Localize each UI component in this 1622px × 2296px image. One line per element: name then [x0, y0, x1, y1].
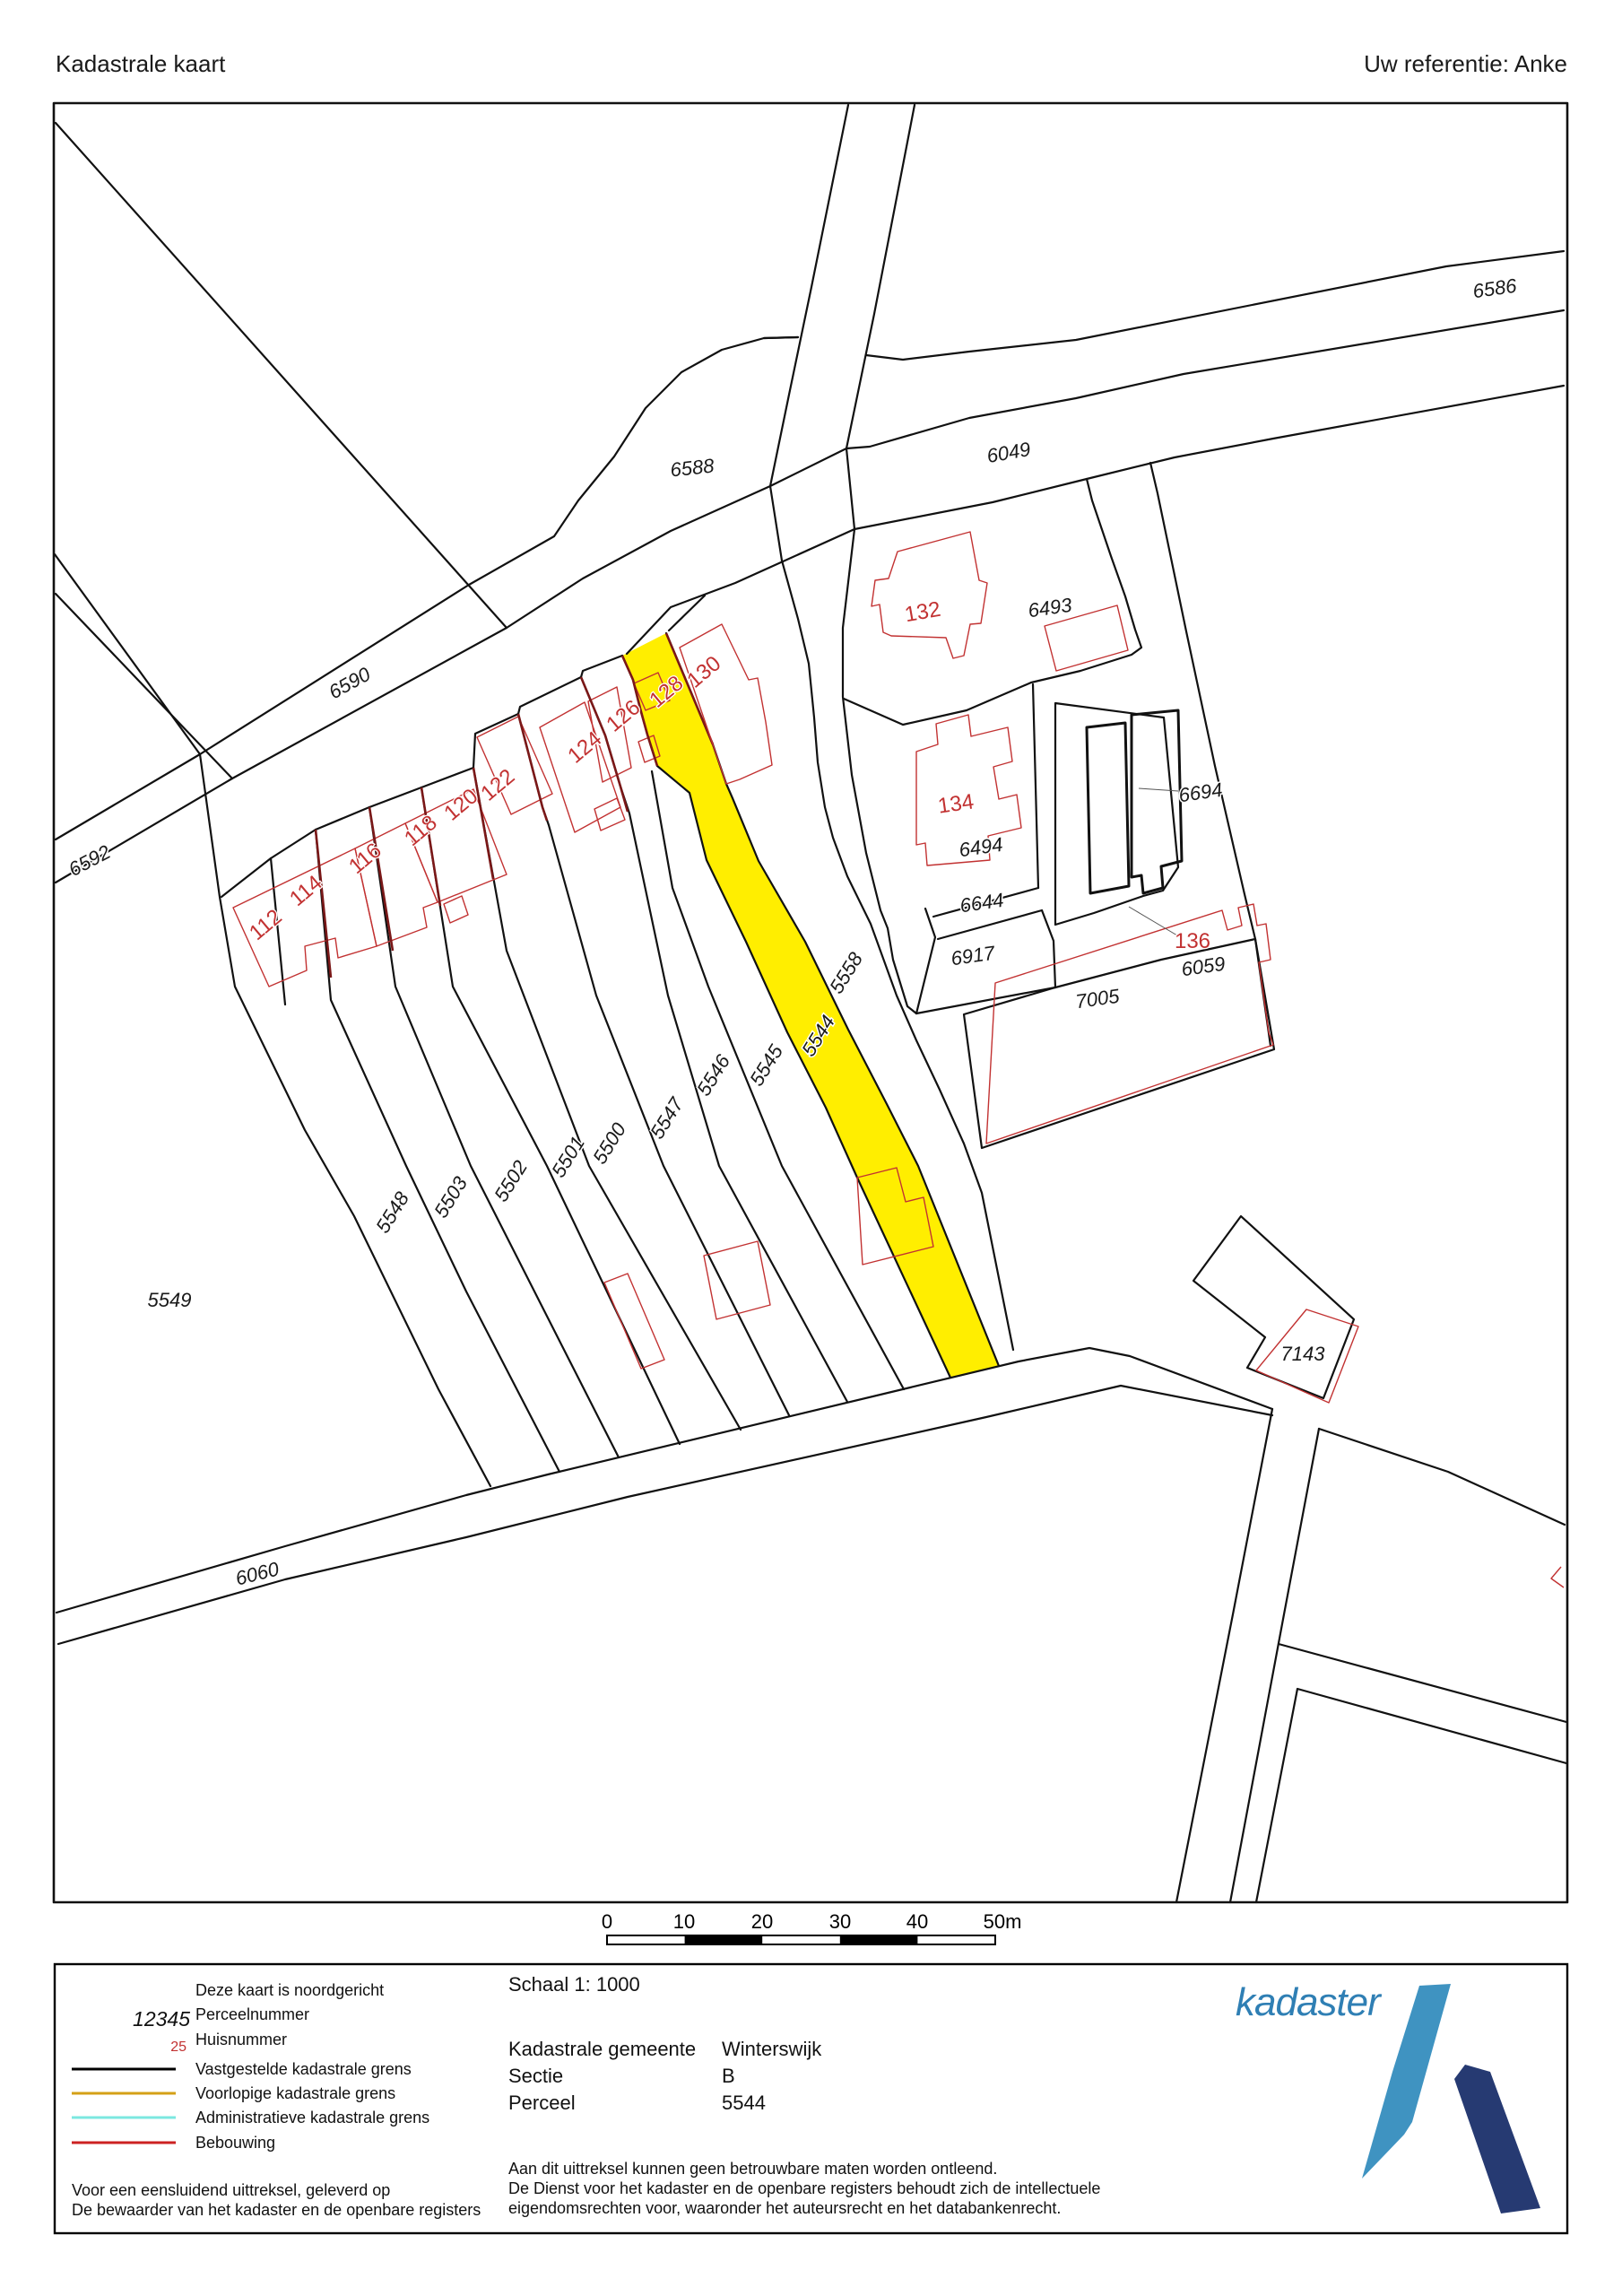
svg-text:5544: 5544 [722, 2092, 766, 2114]
svg-text:10: 10 [673, 1910, 695, 1933]
svg-text:50m: 50m [984, 1910, 1022, 1933]
svg-text:Deze kaart is noordgericht: Deze kaart is noordgericht [195, 1981, 384, 1999]
svg-text:136: 136 [1175, 929, 1210, 953]
svg-text:De Dienst voor het kadaster en: De Dienst voor het kadaster en de openba… [508, 2179, 1100, 2197]
svg-text:De bewaarder van het kadaster: De bewaarder van het kadaster en de open… [72, 2201, 481, 2219]
svg-text:Kadastrale kaart: Kadastrale kaart [56, 50, 226, 77]
svg-text:Huisnummer: Huisnummer [195, 2031, 287, 2048]
svg-text:Voor een eensluidend uittrekse: Voor een eensluidend uittreksel, gelever… [72, 2181, 390, 2199]
svg-text:20: 20 [751, 1910, 773, 1933]
svg-text:12345: 12345 [133, 2007, 190, 2031]
svg-text:Kadastrale gemeente: Kadastrale gemeente [508, 2038, 696, 2060]
svg-text:6588: 6588 [669, 454, 716, 481]
svg-text:30: 30 [829, 1910, 851, 1933]
svg-text:eigendomsrechten voor, waarond: eigendomsrechten voor, waaronder het aut… [508, 2199, 1061, 2217]
svg-text:kadaster: kadaster [1236, 1980, 1383, 2024]
svg-text:0: 0 [602, 1910, 612, 1933]
svg-text:Uw referentie: Anke: Uw referentie: Anke [1364, 50, 1567, 77]
svg-text:25: 25 [170, 2039, 186, 2055]
svg-text:7143: 7143 [1281, 1343, 1326, 1365]
svg-text:Winterswijk: Winterswijk [722, 2038, 822, 2060]
svg-text:Voorlopige kadastrale grens: Voorlopige kadastrale grens [195, 2084, 395, 2102]
svg-text:5549: 5549 [148, 1289, 192, 1311]
svg-text:Bebouwing: Bebouwing [195, 2134, 275, 2152]
svg-text:40: 40 [906, 1910, 928, 1933]
svg-text:Administratieve kadastrale gre: Administratieve kadastrale grens [195, 2109, 429, 2126]
svg-text:Vastgestelde kadastrale grens: Vastgestelde kadastrale grens [195, 2060, 412, 2078]
svg-text:Perceelnummer: Perceelnummer [195, 2005, 309, 2023]
svg-text:Schaal 1: 1000: Schaal 1: 1000 [508, 1973, 640, 1996]
svg-text:Perceel: Perceel [508, 2092, 576, 2114]
svg-text:Sectie: Sectie [508, 2065, 563, 2087]
svg-text:B: B [722, 2065, 735, 2087]
svg-text:Aan dit uittreksel kunnen geen: Aan dit uittreksel kunnen geen betrouwba… [508, 2160, 997, 2178]
svg-text:134: 134 [936, 789, 975, 818]
